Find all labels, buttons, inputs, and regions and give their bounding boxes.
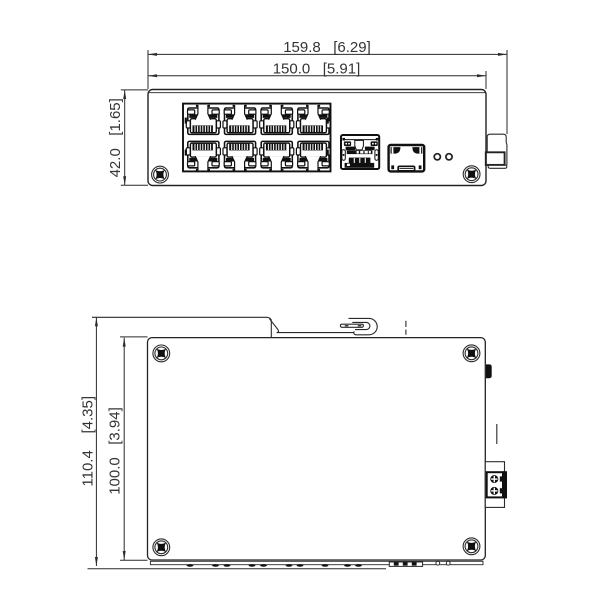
svg-text:110.4 [4.35]: 110.4 [4.35] xyxy=(80,396,97,487)
svg-text:159.8 [6.29]: 159.8 [6.29] xyxy=(283,39,371,56)
svg-text:42.0 [1.65]: 42.0 [1.65] xyxy=(107,98,124,177)
svg-text:100.0 [3.94]: 100.0 [3.94] xyxy=(107,407,124,495)
svg-text:150.0 [5.91]: 150.0 [5.91] xyxy=(273,60,361,77)
